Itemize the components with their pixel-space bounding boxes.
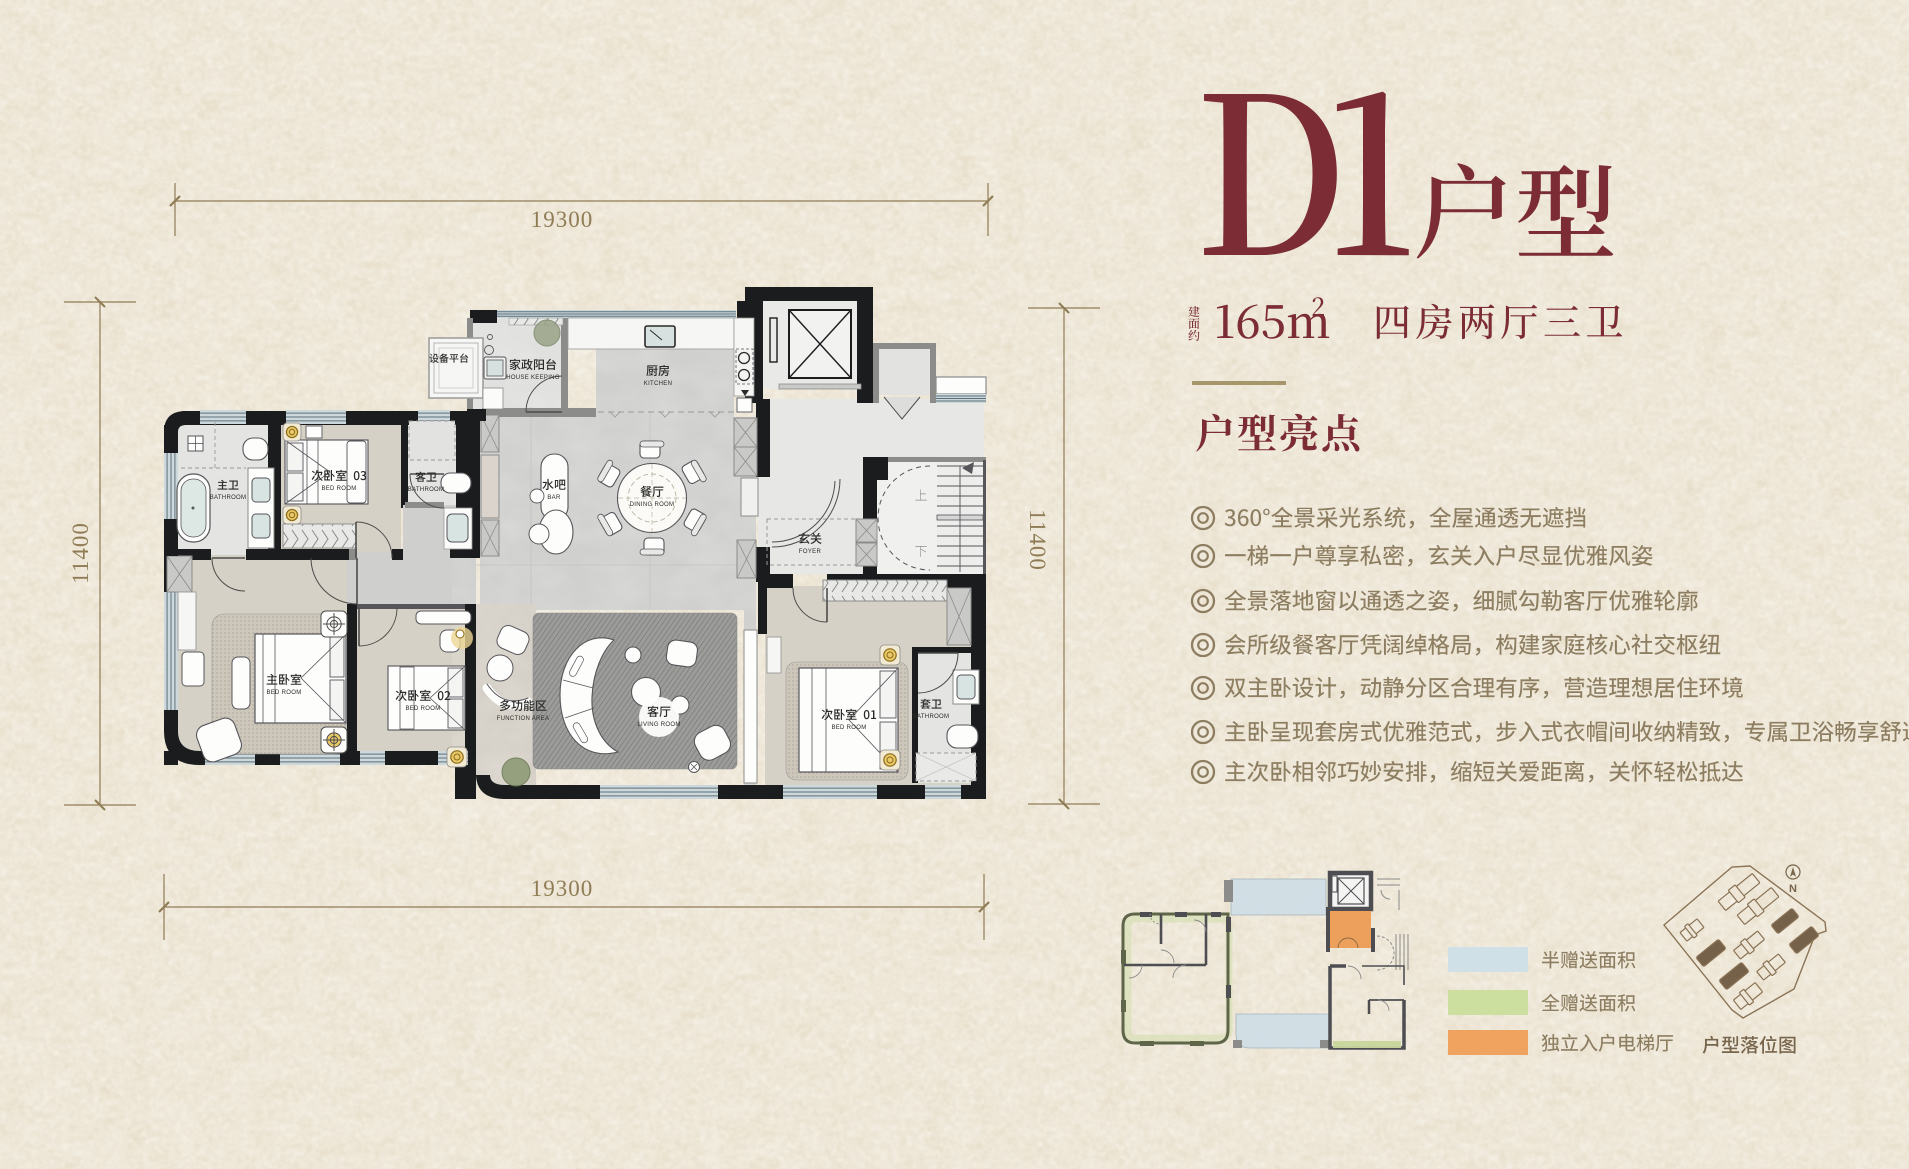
svg-text:LIVING ROOM: LIVING ROOM bbox=[637, 722, 680, 728]
svg-text:19300: 19300 bbox=[531, 207, 594, 232]
svg-text:11400: 11400 bbox=[68, 522, 93, 584]
svg-text:BED ROOM: BED ROOM bbox=[266, 690, 301, 696]
svg-text:BATHROOM: BATHROOM bbox=[408, 487, 445, 493]
svg-text:BATHROOM: BATHROOM bbox=[210, 495, 247, 501]
svg-text:FUNCTION AREA: FUNCTION AREA bbox=[497, 716, 550, 722]
svg-text:KITCHEN: KITCHEN bbox=[644, 381, 672, 387]
svg-text:BED ROOM: BED ROOM bbox=[831, 725, 866, 731]
svg-text:FOYER: FOYER bbox=[799, 549, 822, 555]
svg-text:BAR: BAR bbox=[547, 495, 561, 501]
svg-text:11400: 11400 bbox=[1025, 509, 1050, 571]
svg-text:DINING ROOM: DINING ROOM bbox=[630, 502, 675, 508]
svg-text:19300: 19300 bbox=[531, 876, 594, 901]
svg-text:BED ROOM: BED ROOM bbox=[321, 486, 356, 492]
svg-text:N: N bbox=[1789, 883, 1797, 895]
svg-text:HOUSE KEEPING: HOUSE KEEPING bbox=[506, 375, 560, 381]
svg-text:BED ROOM: BED ROOM bbox=[405, 706, 440, 712]
svg-text:BATHROOM: BATHROOM bbox=[913, 714, 950, 720]
